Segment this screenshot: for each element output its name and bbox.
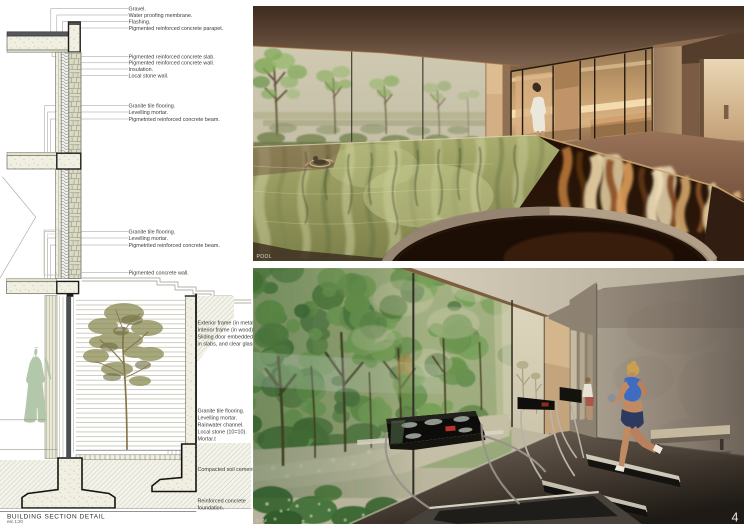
svg-text:Flashing.: Flashing. bbox=[129, 19, 151, 25]
svg-text:Levelling mortar.: Levelling mortar. bbox=[129, 236, 169, 242]
svg-text:Granite tile flooring.: Granite tile flooring. bbox=[129, 229, 176, 235]
svg-text:foundation.: foundation. bbox=[198, 506, 225, 512]
svg-text:Levelling mortar.: Levelling mortar. bbox=[198, 415, 238, 421]
svg-text:4: 4 bbox=[731, 511, 738, 524]
svg-text:Pigmented reinforced concrete: Pigmented reinforced concrete parapet. bbox=[129, 26, 224, 32]
svg-text:Granite tile flooring.: Granite tile flooring. bbox=[129, 103, 176, 109]
svg-text:Insulation.: Insulation. bbox=[129, 67, 154, 73]
svg-text:Interior frame (in wood).: Interior frame (in wood). bbox=[198, 327, 254, 333]
svg-text:Mortar.t: Mortar.t bbox=[198, 436, 217, 442]
svg-text:Reinforced concrete: Reinforced concrete bbox=[198, 499, 246, 505]
svg-text:Water proofing membrane.: Water proofing membrane. bbox=[129, 13, 193, 19]
svg-text:Pigmetrited reinforced concret: Pigmetrited reinforced concrete beam. bbox=[129, 243, 220, 249]
svg-text:Rainwater channel.: Rainwater channel. bbox=[198, 422, 244, 428]
svg-text:Sliding door embedded.: Sliding door embedded. bbox=[198, 334, 254, 340]
svg-text:Pigmetnted reinforced concrete: Pigmetnted reinforced concrete beam. bbox=[129, 117, 220, 123]
svg-text:Gravel.: Gravel. bbox=[129, 6, 146, 12]
svg-text:Levelling mortar.: Levelling mortar. bbox=[129, 110, 169, 116]
svg-text:Exterior frame (in metal): Exterior frame (in metal) bbox=[198, 320, 254, 326]
svg-text:POOL: POOL bbox=[257, 254, 273, 260]
svg-text:Pigmented reinforced concrete: Pigmented reinforced concrete wall. bbox=[129, 61, 215, 67]
svg-text:esc 1:20: esc 1:20 bbox=[7, 519, 24, 524]
svg-text:in slabs, and clear glass.: in slabs, and clear glass. bbox=[198, 341, 254, 347]
svg-text:Pigmented concrete wall.: Pigmented concrete wall. bbox=[129, 270, 189, 276]
svg-text:Local stone wall.: Local stone wall. bbox=[129, 73, 169, 79]
svg-text:GYM: GYM bbox=[256, 518, 267, 523]
svg-text:Granite tile flooring.: Granite tile flooring. bbox=[198, 408, 245, 414]
svg-text:Local stone (10=10).: Local stone (10=10). bbox=[198, 429, 247, 435]
svg-text:Pigmented reinforced concrete: Pigmented reinforced concrete slab. bbox=[129, 54, 215, 60]
svg-text:Compacted soil cement.: Compacted soil cement. bbox=[198, 467, 254, 473]
